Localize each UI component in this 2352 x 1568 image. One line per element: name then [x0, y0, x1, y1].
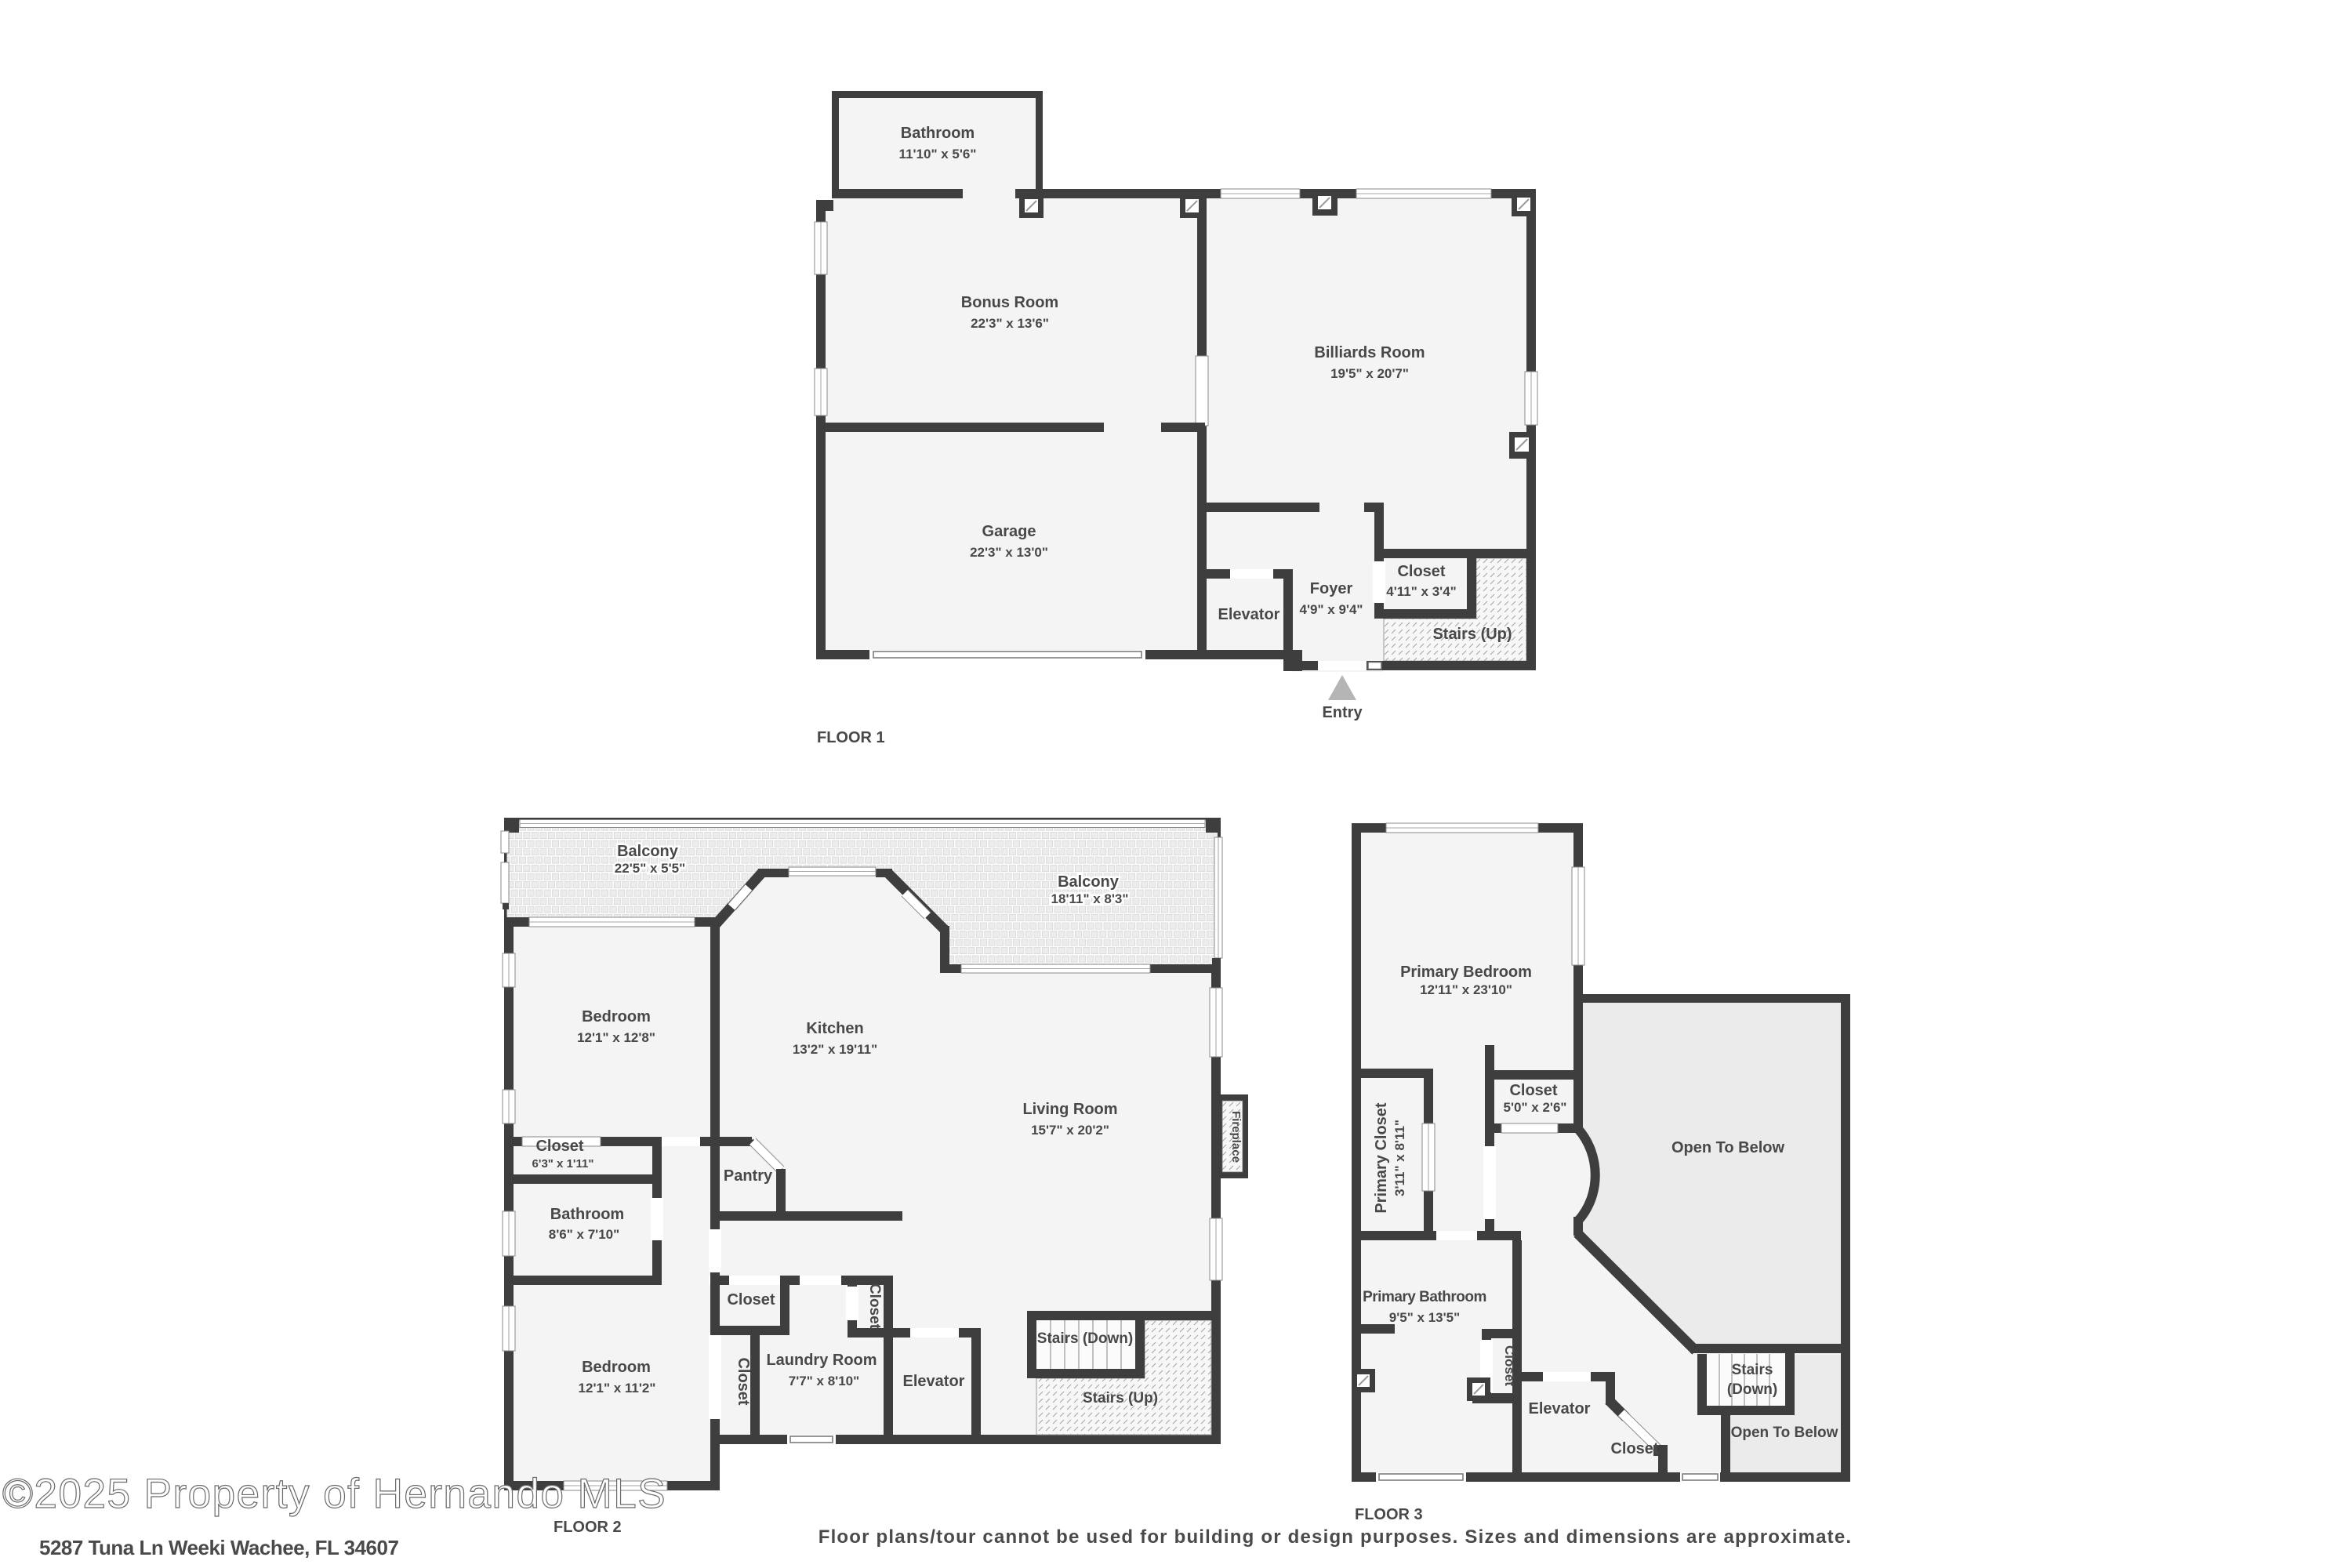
svg-text:Billiards Room: Billiards Room: [1314, 344, 1425, 361]
svg-text:7'7" x 8'10": 7'7" x 8'10": [789, 1374, 859, 1388]
svg-text:Fireplace: Fireplace: [1229, 1111, 1243, 1163]
svg-text:Closet: Closet: [1509, 1082, 1557, 1099]
svg-text:6'3" x 1'11": 6'3" x 1'11": [532, 1157, 594, 1171]
svg-text:11'10" x 5'6": 11'10" x 5'6": [899, 147, 977, 162]
svg-text:12'11" x 23'10": 12'11" x 23'10": [1420, 982, 1512, 997]
svg-text:Closet: Closet: [1610, 1440, 1658, 1457]
svg-text:Primary Closet: Primary Closet: [1373, 1102, 1390, 1214]
svg-text:22'3" x 13'0": 22'3" x 13'0": [970, 545, 1048, 560]
svg-text:8'6" x 7'10": 8'6" x 7'10": [549, 1227, 619, 1242]
svg-text:Bonus Room: Bonus Room: [961, 294, 1058, 311]
svg-text:Balcony: Balcony: [617, 843, 679, 860]
svg-text:Stairs (Up): Stairs (Up): [1432, 626, 1512, 643]
svg-text:Bathroom: Bathroom: [901, 125, 975, 142]
svg-text:Closet: Closet: [735, 1357, 752, 1405]
svg-text:FLOOR 2: FLOOR 2: [554, 1519, 622, 1536]
svg-text:Garage: Garage: [982, 523, 1036, 540]
svg-text:Bathroom: Bathroom: [550, 1206, 624, 1223]
svg-text:5'0" x 2'6": 5'0" x 2'6": [1504, 1100, 1567, 1115]
svg-text:©2025 Property of Hernando MLS: ©2025 Property of Hernando MLS: [2, 1471, 666, 1517]
svg-text:12'1" x 11'2": 12'1" x 11'2": [579, 1381, 656, 1396]
svg-text:Closet: Closet: [727, 1291, 775, 1308]
svg-text:9'5" x 13'5": 9'5" x 13'5": [1389, 1310, 1460, 1325]
svg-text:Elevator: Elevator: [1218, 606, 1280, 623]
svg-text:Foyer: Foyer: [1310, 580, 1353, 597]
svg-text:Primary Bathroom: Primary Bathroom: [1363, 1289, 1486, 1305]
svg-text:3'11" x 8'11": 3'11" x 8'11": [1392, 1120, 1407, 1196]
svg-text:Stairs (Down): Stairs (Down): [1037, 1330, 1133, 1347]
svg-text:Bedroom: Bedroom: [582, 1359, 651, 1376]
svg-text:Entry: Entry: [1322, 704, 1363, 721]
svg-text:FLOOR 3: FLOOR 3: [1355, 1506, 1423, 1523]
svg-text:22'5" x 5'5": 22'5" x 5'5": [615, 861, 685, 876]
svg-text:12'1" x 12'8": 12'1" x 12'8": [577, 1030, 655, 1045]
svg-text:Laundry Room: Laundry Room: [766, 1352, 877, 1369]
svg-text:Closet: Closet: [866, 1283, 883, 1330]
svg-text:Elevator: Elevator: [1529, 1400, 1591, 1417]
svg-text:Closet: Closet: [535, 1138, 583, 1155]
svg-text:Stairs (Up): Stairs (Up): [1083, 1390, 1158, 1406]
svg-text:Bedroom: Bedroom: [582, 1008, 651, 1025]
svg-text:FLOOR 1: FLOOR 1: [817, 729, 885, 746]
svg-text:Closet: Closet: [1397, 563, 1445, 580]
svg-text:22'3" x 13'6": 22'3" x 13'6": [971, 316, 1049, 331]
svg-text:(Down): (Down): [1727, 1381, 1777, 1398]
svg-text:15'7" x 20'2": 15'7" x 20'2": [1031, 1123, 1109, 1138]
svg-text:Elevator: Elevator: [903, 1373, 965, 1390]
svg-text:Open To Below: Open To Below: [1671, 1139, 1785, 1156]
svg-text:Closet: Closet: [1502, 1345, 1517, 1386]
svg-text:4'9" x 9'4": 4'9" x 9'4": [1300, 602, 1363, 617]
svg-text:Balcony: Balcony: [1058, 873, 1120, 891]
svg-text:Kitchen: Kitchen: [806, 1020, 863, 1037]
svg-text:5287 Tuna Ln Weeki Wachee, FL: 5287 Tuna Ln Weeki Wachee, FL 34607: [39, 1536, 398, 1559]
svg-text:13'2" x 19'11": 13'2" x 19'11": [793, 1042, 877, 1057]
svg-text:18'11" x 8'3": 18'11" x 8'3": [1051, 891, 1129, 906]
svg-text:Open To Below: Open To Below: [1731, 1425, 1838, 1441]
svg-text:19'5" x 20'7": 19'5" x 20'7": [1330, 366, 1409, 381]
svg-text:Primary Bedroom: Primary Bedroom: [1400, 964, 1532, 981]
svg-text:Stairs: Stairs: [1732, 1362, 1773, 1378]
svg-text:Living Room: Living Room: [1022, 1101, 1117, 1118]
svg-text:Pantry: Pantry: [724, 1167, 773, 1185]
svg-text:Floor plans/tour cannot be use: Floor plans/tour cannot be used for buil…: [818, 1526, 1853, 1548]
svg-text:4'11" x 3'4": 4'11" x 3'4": [1386, 584, 1456, 599]
